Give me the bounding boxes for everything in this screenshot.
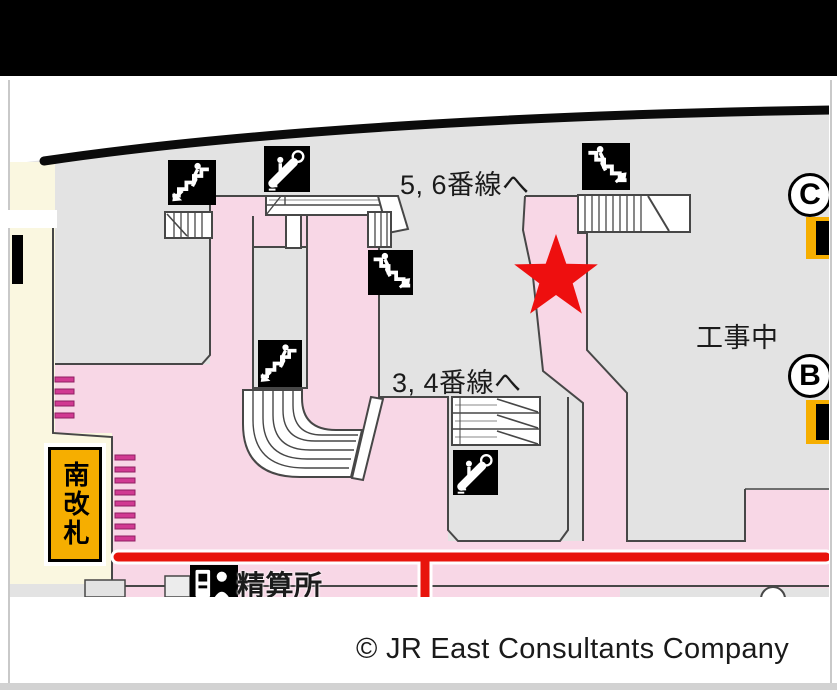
- south-gate-sign: 南改札: [44, 443, 106, 566]
- exit-badge-b: B: [788, 354, 832, 398]
- stairs-up-right-icon: [368, 250, 413, 295]
- card-border-right: [830, 80, 832, 683]
- label-to-platforms-3-4: 3, 4番線へ: [392, 361, 522, 400]
- elevator-icon: [806, 400, 831, 444]
- bottom-structure: [165, 576, 190, 597]
- station-map-screenshot: 5, 6番線へ 3, 4番線へ 工事中 精算所 南改札 C B © JR Eas…: [0, 0, 837, 690]
- bottom-structure: [85, 580, 125, 597]
- card-border-bottom: [0, 683, 837, 690]
- top-banner: [0, 0, 837, 76]
- stairs-down-left-icon: [168, 160, 216, 205]
- floor-bottom-strip: [620, 588, 830, 597]
- stairs-up-right-icon: [582, 143, 630, 190]
- label-to-platforms-5-6: 5, 6番線へ: [400, 163, 530, 202]
- card-border-left: [8, 228, 10, 683]
- left-pillar: [12, 235, 23, 284]
- stairs-down-left-icon: [258, 340, 302, 387]
- card-border-left: [8, 80, 10, 210]
- escalator-icon: [264, 146, 310, 192]
- south-gate-sign-text: 南改札: [48, 447, 102, 562]
- fare-machine-icon: [190, 565, 238, 600]
- copyright-text: © JR East Consultants Company: [356, 633, 789, 666]
- label-under-construction: 工事中: [696, 316, 779, 355]
- escalator-icon: [453, 450, 498, 495]
- exit-badge-c: C: [788, 173, 832, 217]
- elevator-icon: [806, 217, 831, 259]
